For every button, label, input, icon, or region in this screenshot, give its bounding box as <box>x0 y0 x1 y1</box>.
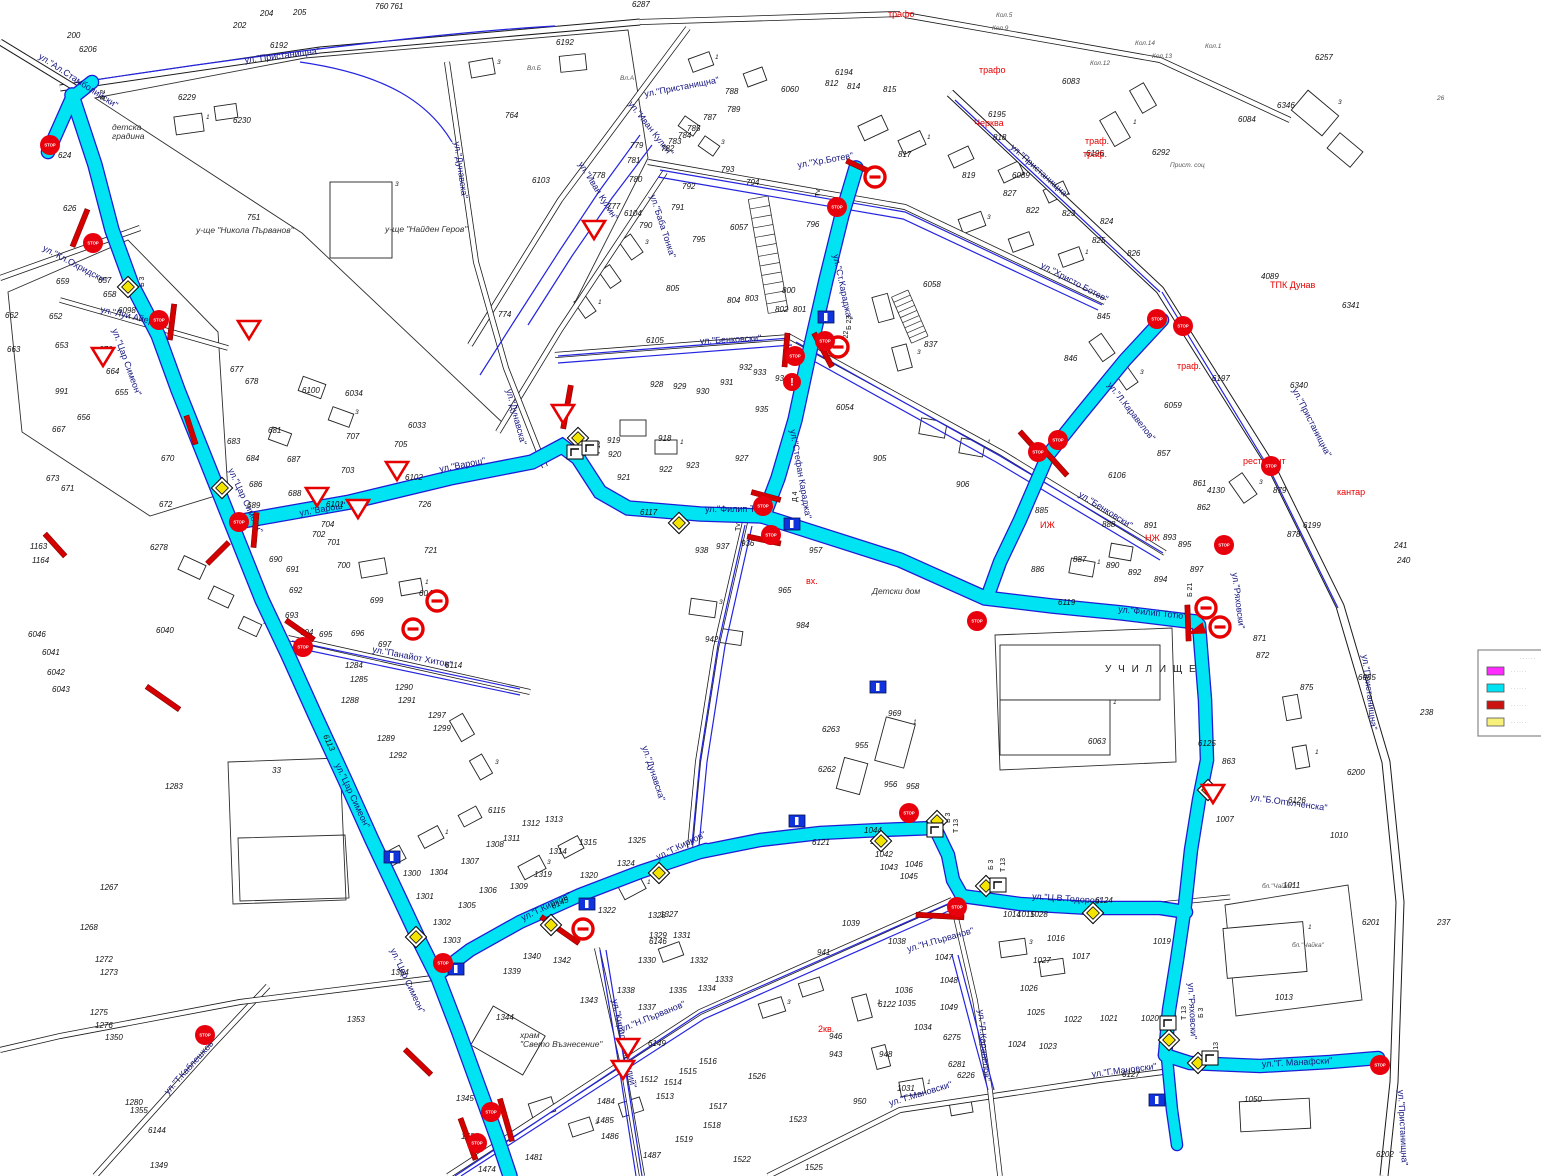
building <box>1109 543 1133 561</box>
svg-text:STOP: STOP <box>1151 317 1163 322</box>
parcel-number: 1042 <box>875 850 893 859</box>
parcel-number: 6201 <box>1362 918 1380 927</box>
building <box>999 938 1027 957</box>
parcel-number: 205 <box>292 8 307 17</box>
parcel-number: 886 <box>1031 565 1045 574</box>
parcel-number: 6287 <box>632 0 650 9</box>
parcel-number: 1010 <box>1330 831 1348 840</box>
parcel-number: 819 <box>962 171 976 180</box>
svg-text:STOP: STOP <box>765 533 777 538</box>
parcel-number: 879 <box>1273 486 1287 495</box>
parcel-number: 1343 <box>580 996 598 1005</box>
svg-text:3: 3 <box>1140 369 1144 376</box>
building <box>688 52 713 73</box>
parcel-number: 6041 <box>42 648 60 657</box>
parcel-number: 626 <box>63 204 77 213</box>
building <box>1291 90 1338 136</box>
parcel-number: 657 <box>98 276 112 285</box>
parcel-number: 1014 <box>1003 910 1021 919</box>
red-poi-label: трафо <box>888 9 915 19</box>
parcel-number: 1020 <box>1141 1014 1159 1023</box>
parcel-number: 846 <box>1064 354 1078 363</box>
parcel-number: 6275 <box>943 1033 961 1042</box>
svg-text:3: 3 <box>497 59 501 66</box>
parcel-number: 241 <box>1393 541 1407 550</box>
parcel-number: 777 <box>607 202 621 211</box>
svg-text:STOP: STOP <box>903 811 915 816</box>
parcel-number: 1283 <box>165 782 183 791</box>
parcel-number: 871 <box>1253 634 1266 643</box>
red-poi-label: 2кв. <box>818 1024 834 1034</box>
parcel-number: 1026 <box>1020 984 1038 993</box>
sign-code: Т 13 <box>953 819 960 833</box>
parcel-number: 801 <box>793 305 806 314</box>
parcel-number: 1292 <box>389 751 407 760</box>
building <box>872 293 894 322</box>
parcel-number: 6197 <box>1212 374 1230 383</box>
parcel-number: 789 <box>727 105 741 114</box>
parcel-number: 6100 <box>302 386 320 395</box>
parcel-number: 726 <box>418 500 432 509</box>
parcel-number: 1046 <box>905 860 923 869</box>
parcel-number: 927 <box>735 454 749 463</box>
sign-code: Т 13 <box>1000 858 1007 872</box>
legend-swatch-route-closed <box>1487 701 1504 709</box>
parcel-number: 686 <box>249 480 263 489</box>
parcel-number: 6263 <box>822 725 840 734</box>
parcel-number: 1039 <box>842 919 860 928</box>
svg-text:1: 1 <box>1085 249 1089 256</box>
parcel-number: 1036 <box>895 986 913 995</box>
building <box>1089 333 1115 361</box>
parcel-number: 670 <box>161 454 175 463</box>
parcel-number: 1353 <box>347 1015 365 1024</box>
parcel-number: 1027 <box>1033 956 1051 965</box>
building <box>174 113 204 135</box>
parcel-number: 845 <box>1097 312 1111 321</box>
parcel-number: 791 <box>671 203 684 212</box>
parcel-number: 862 <box>1197 503 1211 512</box>
poi-label: Детски дом <box>871 586 920 596</box>
parcel-number: 705 <box>394 440 408 449</box>
svg-text:3: 3 <box>495 759 499 766</box>
parcel-number: 790 <box>639 221 653 230</box>
building <box>948 146 974 168</box>
parcel-number: 721 <box>424 546 437 555</box>
parcel-number: 6199 <box>1303 521 1321 530</box>
parcel-number: 933 <box>753 368 767 377</box>
parcel-number: 1522 <box>733 1155 751 1164</box>
parcel-number: 6119 <box>1058 598 1076 607</box>
parcel-number: 890 <box>1106 561 1120 570</box>
red-poi-label: трафо <box>979 65 1006 75</box>
parcel-number: 893 <box>1163 533 1177 542</box>
svg-text:3: 3 <box>787 999 791 1006</box>
parcel-number: 760 <box>375 2 389 11</box>
parcel-number: 238 <box>1419 708 1434 717</box>
parcel-number: 1021 <box>1100 1014 1118 1023</box>
svg-text:1: 1 <box>1133 119 1137 126</box>
parcel-number: 202 <box>232 21 247 30</box>
building <box>620 420 646 436</box>
parcel-number: 689 <box>247 501 261 510</box>
street-label: ул."Ряховски" <box>1230 572 1247 629</box>
parcel-number: 6281 <box>948 1060 966 1069</box>
building <box>1223 922 1307 979</box>
parcel-number: 751 <box>247 213 260 222</box>
parcel-number: 673 <box>46 474 60 483</box>
yield-sign-icon <box>92 348 114 366</box>
parcel-number: 6057 <box>730 223 748 232</box>
sign-code: Б 3 <box>988 859 995 870</box>
sign-code: Б 23 <box>846 316 853 330</box>
parcel-number: 6034 <box>345 389 363 398</box>
svg-text:STOP: STOP <box>87 241 99 246</box>
map-canvas[interactable]: 1313131313131313131313131313131313131ул.… <box>0 0 1541 1176</box>
parcel-number: 704 <box>321 520 335 529</box>
sign-code: Т 13 <box>1181 1006 1188 1020</box>
parcel-number: 991 <box>55 387 68 396</box>
parcel-number: 965 <box>778 586 792 595</box>
svg-text:STOP: STOP <box>437 961 449 966</box>
red-poi-label: траф. <box>1177 361 1201 371</box>
svg-text:3: 3 <box>355 409 359 416</box>
parcel-number: 1306 <box>479 886 497 895</box>
building <box>1058 247 1083 268</box>
svg-text:3: 3 <box>987 214 991 221</box>
red-poi-label: кантар <box>1337 487 1365 497</box>
building <box>852 994 873 1021</box>
sign-code: Д 4 <box>792 491 799 502</box>
parcel-number: 6042 <box>47 668 65 677</box>
parcel-number: 948 <box>879 1050 893 1059</box>
parcel-number: 237 <box>1436 918 1451 927</box>
svg-text:Кол.13: Кол.13 <box>1152 53 1172 60</box>
parcel-number: 703 <box>341 466 355 475</box>
poi-label-caps: У Ч И Л И Щ Е <box>1105 664 1198 675</box>
parcel-number: 1487 <box>643 1151 661 1160</box>
parcel-number: 691 <box>286 565 299 574</box>
parcel-number: 6200 <box>1347 768 1365 777</box>
svg-text:3: 3 <box>721 139 725 146</box>
parcel-number: 1023 <box>1039 1042 1057 1051</box>
svg-text:1: 1 <box>680 439 684 446</box>
buildings: 1313131313131313131313131313131313131 <box>174 52 1363 1137</box>
svg-text:STOP: STOP <box>297 645 309 650</box>
parcel-number: 1485 <box>596 1116 614 1125</box>
parcel-number: 928 <box>650 380 664 389</box>
svg-text:STOP: STOP <box>831 205 843 210</box>
parcel-number: 1332 <box>690 956 708 965</box>
parcel-number: 656 <box>77 413 91 422</box>
parcel-number: 6058 <box>923 280 941 289</box>
parcel-number: 930 <box>696 387 710 396</box>
parcel-number: 664 <box>106 367 120 376</box>
building <box>958 211 986 233</box>
parcel-number: 920 <box>608 450 622 459</box>
parcel-number: 6292 <box>1152 148 1170 157</box>
parcel-number: 1276 <box>95 1021 113 1030</box>
building <box>238 616 262 636</box>
parcel-number: 764 <box>505 111 519 120</box>
parcel-number: 891 <box>1144 521 1157 530</box>
svg-text:STOP: STOP <box>485 1110 497 1115</box>
svg-text:STOP: STOP <box>971 619 983 624</box>
svg-text:бл."Чайка": бл."Чайка" <box>1292 941 1325 949</box>
parcel-number: 897 <box>1190 565 1204 574</box>
svg-text:STOP: STOP <box>1374 1063 1386 1068</box>
parcel-number: 672 <box>159 500 173 509</box>
building <box>568 1117 593 1137</box>
sign-code: Тv <box>735 523 742 531</box>
svg-text:Прист. соц: Прист. соц <box>1170 162 1205 169</box>
parcel-number: 1345 <box>456 1094 474 1103</box>
parcel-number: 1284 <box>345 661 363 670</box>
parcel-number: 677 <box>230 365 244 374</box>
parcel-number: 6122 <box>878 1000 896 1009</box>
parcel-number: 1303 <box>443 936 461 945</box>
street-label: ул."Дунавска" <box>452 141 470 199</box>
parcel-number: 6046 <box>28 630 46 639</box>
parcel-number: 1035 <box>898 999 916 1008</box>
svg-text:STOP: STOP <box>757 504 769 509</box>
svg-text:1: 1 <box>206 114 210 121</box>
parcel-number: 1275 <box>90 1008 108 1017</box>
parcel-number: 795 <box>692 235 706 244</box>
building <box>559 54 587 73</box>
parcel-number: 624 <box>58 151 72 160</box>
parcel-number: 827 <box>1003 189 1017 198</box>
parcel-number: 931 <box>720 378 733 387</box>
sign-pole-bar <box>206 541 231 566</box>
parcel-number: 1481 <box>525 1153 543 1162</box>
parcel-number: 1013 <box>1275 993 1293 1002</box>
parcel-number: 918 <box>658 434 672 443</box>
parcel-number: 942 <box>705 635 719 644</box>
parcel-number: 659 <box>56 277 70 286</box>
parcel-number: 6085 <box>1358 673 1376 682</box>
parcel-number: 6257 <box>1315 53 1333 62</box>
street-label: ул."Христо Ботев" <box>1039 260 1110 304</box>
parcel-number: 887 <box>1073 555 1087 564</box>
parcel-number: 6121 <box>812 838 830 847</box>
parcel-number: 1043 <box>880 863 898 872</box>
parcel-number: 1164 <box>32 556 50 565</box>
parcel-number: 814 <box>847 82 861 91</box>
parcel-number: 1519 <box>675 1135 693 1144</box>
parcel-number: 662 <box>5 311 19 320</box>
parcel-number: 1313 <box>545 815 563 824</box>
parcel-number: 658 <box>103 290 117 299</box>
svg-text:1: 1 <box>647 879 651 886</box>
building <box>858 115 888 140</box>
sign-code: Тv <box>815 189 822 197</box>
parcel-number: 1050 <box>1244 1095 1262 1104</box>
parcel-number: 1304 <box>430 868 448 877</box>
parcel-number: 1516 <box>699 1057 717 1066</box>
parcel-number: 6033 <box>408 421 426 430</box>
svg-text:Кол.9: Кол.9 <box>992 25 1009 32</box>
parcel-number: 1525 <box>805 1163 823 1172</box>
parcel-number: 1512 <box>640 1075 658 1084</box>
parcel-number: 818 <box>993 133 1007 142</box>
building <box>330 182 392 258</box>
parcel-number: 815 <box>883 85 897 94</box>
building <box>208 586 234 608</box>
parcel-number: 6043 <box>52 685 70 694</box>
parcel-number: 955 <box>855 741 869 750</box>
parcel-number: 761 <box>390 2 403 11</box>
parcel-number: 1289 <box>377 734 395 743</box>
parcel-number: 938 <box>695 546 709 555</box>
parcel-number: 781 <box>627 156 640 165</box>
route-sign-icon <box>927 823 943 837</box>
parcel-number: 652 <box>49 312 63 321</box>
parcel-number: 1267 <box>100 883 118 892</box>
parcel-number: 802 <box>775 305 789 314</box>
parcel-number: 678 <box>245 377 259 386</box>
parcel-number: 690 <box>269 555 283 564</box>
route-sign-icon <box>567 445 583 459</box>
sign-pole-bar <box>403 1048 433 1077</box>
parcel-number: 6060 <box>781 85 799 94</box>
parcel-number: 1312 <box>522 819 540 828</box>
parcel-number: 699 <box>370 596 384 605</box>
parcel-number: 793 <box>721 165 735 174</box>
street-label: ул."Бенковски" <box>700 333 762 346</box>
building <box>1292 745 1310 769</box>
parcel-number: 6106 <box>1108 471 1126 480</box>
parcel-number: 667 <box>52 425 66 434</box>
parcel-number: 1022 <box>1064 1015 1082 1024</box>
parcel-number: 6104 <box>624 209 642 218</box>
building <box>1229 473 1257 503</box>
parcel-number: 6098 <box>118 306 136 315</box>
legend-swatch-route-main <box>1487 684 1504 692</box>
parcel-number: 1048 <box>940 976 958 985</box>
parcel-number: 957 <box>809 546 823 555</box>
legend-swatch-route-alt <box>1487 718 1504 726</box>
parcel-number: 905 <box>873 454 887 463</box>
parcel-number: 6102 <box>405 473 423 482</box>
parcel-number: 6115 <box>488 806 506 815</box>
street-label: ул."Цар Симеон" <box>110 327 144 397</box>
parcel-number: 6192 <box>556 38 574 47</box>
parcel-number: 892 <box>1128 568 1142 577</box>
parcel-number: 6063 <box>1088 737 1106 746</box>
parcel-number: 1017 <box>1072 952 1090 961</box>
parcel-number: 1311 <box>503 834 520 843</box>
parcel-number: 921 <box>617 473 630 482</box>
parcel-number: 6054 <box>836 403 854 412</box>
parcel-number: 956 <box>884 780 898 789</box>
red-poi-label: Черква <box>974 118 1004 128</box>
parcel-number: 1514 <box>664 1078 682 1087</box>
svg-text:1: 1 <box>1308 924 1312 931</box>
parcel-number: 6229 <box>178 93 196 102</box>
parcel-number: 1290 <box>395 683 413 692</box>
red-poi-label: ИЖ <box>1040 520 1055 530</box>
parcel-number: 958 <box>906 782 920 791</box>
parcel-number: 1526 <box>748 1072 766 1081</box>
parcel-number: 671 <box>61 484 74 493</box>
svg-text:STOP: STOP <box>789 354 801 359</box>
building <box>1327 133 1363 168</box>
red-poi-label: вх. <box>806 576 818 586</box>
parcel-number: 822 <box>1026 206 1040 215</box>
street-label: ул."Иван Кулин" <box>576 160 620 222</box>
parcel-number: 6114 <box>445 661 463 670</box>
red-poi-label: НЖ <box>1145 533 1160 543</box>
parcel-number: 787 <box>703 113 717 122</box>
parcel-number: 663 <box>7 345 21 354</box>
parcel-number: 1342 <box>553 956 571 965</box>
svg-text:1: 1 <box>1113 699 1117 706</box>
yield-sign-icon <box>238 321 260 339</box>
street-label: ул."Ст.Караджа" <box>831 253 855 321</box>
svg-text:1: 1 <box>445 829 449 836</box>
svg-text:STOP: STOP <box>951 905 963 910</box>
parcel-number: 702 <box>312 530 326 539</box>
map-viewport: 1313131313131313131313131313131313131ул.… <box>0 0 1541 1176</box>
parcel-number: 1307 <box>461 857 479 866</box>
sign-code: Б 3 <box>1198 1007 1205 1018</box>
legend-swatch-route-planned <box>1487 667 1504 675</box>
parcel-number: 687 <box>287 455 301 464</box>
parcel-number: 6262 <box>818 765 836 774</box>
parcel-number: 1515 <box>679 1067 697 1076</box>
parcel-number: 1513 <box>656 1092 674 1101</box>
parcel-number: 1019 <box>1153 937 1171 946</box>
svg-text:Кол.12: Кол.12 <box>1090 60 1110 67</box>
parcel-number: 969 <box>888 709 902 718</box>
parcel-number: 6226 <box>957 1071 975 1080</box>
parcel-number: 1047 <box>935 953 953 962</box>
parcel-number: 1355 <box>130 1106 148 1115</box>
svg-text:STOP: STOP <box>1032 450 1044 455</box>
parcel-number: 1280 <box>125 1098 143 1107</box>
svg-text:STOP: STOP <box>819 339 831 344</box>
parcel-number: 804 <box>727 296 741 305</box>
parcel-number: 1338 <box>617 986 635 995</box>
parcel-number: 653 <box>55 341 69 350</box>
svg-text:3: 3 <box>1338 99 1342 106</box>
parcel-number: 6089 <box>1012 171 1030 180</box>
building <box>836 757 867 794</box>
parcel-number: 817 <box>898 150 912 159</box>
parcel-number: 1329 <box>649 931 667 940</box>
parcel-number: 1272 <box>95 955 113 964</box>
parcel-number: 6126 <box>1288 796 1306 805</box>
red-poi-labels: трафотрафоЧеркватраф.траф.ТПК Дунавтраф.… <box>806 9 1365 1034</box>
parcel-number: 923 <box>686 461 700 470</box>
street-label: ул."Пристанищна" <box>1396 1090 1410 1166</box>
parcel-number: 1315 <box>579 838 597 847</box>
parcel-number: 794 <box>746 178 760 187</box>
svg-text:3: 3 <box>917 349 921 356</box>
parcel-number: 1350 <box>105 1033 123 1042</box>
parcel-number: 1523 <box>789 1115 807 1124</box>
parcel-number: 681 <box>268 426 281 435</box>
parcel-number: 1305 <box>458 901 476 910</box>
poi-label: у-ще "Найден Геров" <box>384 224 468 234</box>
parcel-number: 6127 <box>1122 1070 1140 1079</box>
parcel-number: 1328 <box>648 911 666 920</box>
parcel-number: 696 <box>351 629 365 638</box>
parcel-number: 1309 <box>510 882 528 891</box>
building <box>418 826 444 849</box>
svg-text:STOP: STOP <box>1265 464 1277 469</box>
